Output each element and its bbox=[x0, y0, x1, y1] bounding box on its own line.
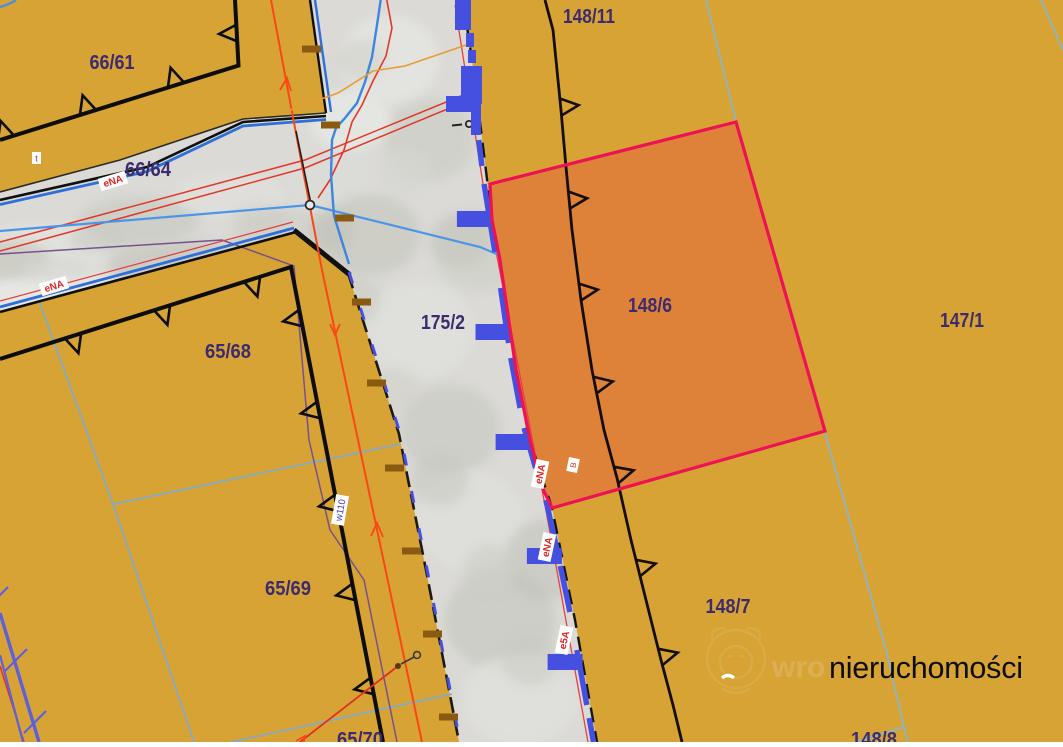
svg-text:nieruchomości: nieruchomości bbox=[829, 651, 1023, 685]
svg-text:65/70: 65/70 bbox=[337, 728, 383, 742]
svg-text:148/11: 148/11 bbox=[563, 5, 615, 28]
svg-text:65/69: 65/69 bbox=[265, 577, 311, 600]
svg-text:147/1: 147/1 bbox=[940, 309, 984, 332]
svg-text:65/68: 65/68 bbox=[205, 340, 251, 363]
svg-text:wro: wro bbox=[771, 651, 825, 684]
svg-text:148/6: 148/6 bbox=[628, 294, 672, 317]
svg-text:148/8: 148/8 bbox=[851, 728, 897, 742]
svg-text:66/64: 66/64 bbox=[125, 158, 172, 181]
svg-text:148/7: 148/7 bbox=[706, 595, 751, 618]
svg-text:175/2: 175/2 bbox=[421, 311, 465, 334]
svg-text:66/61: 66/61 bbox=[90, 51, 135, 74]
